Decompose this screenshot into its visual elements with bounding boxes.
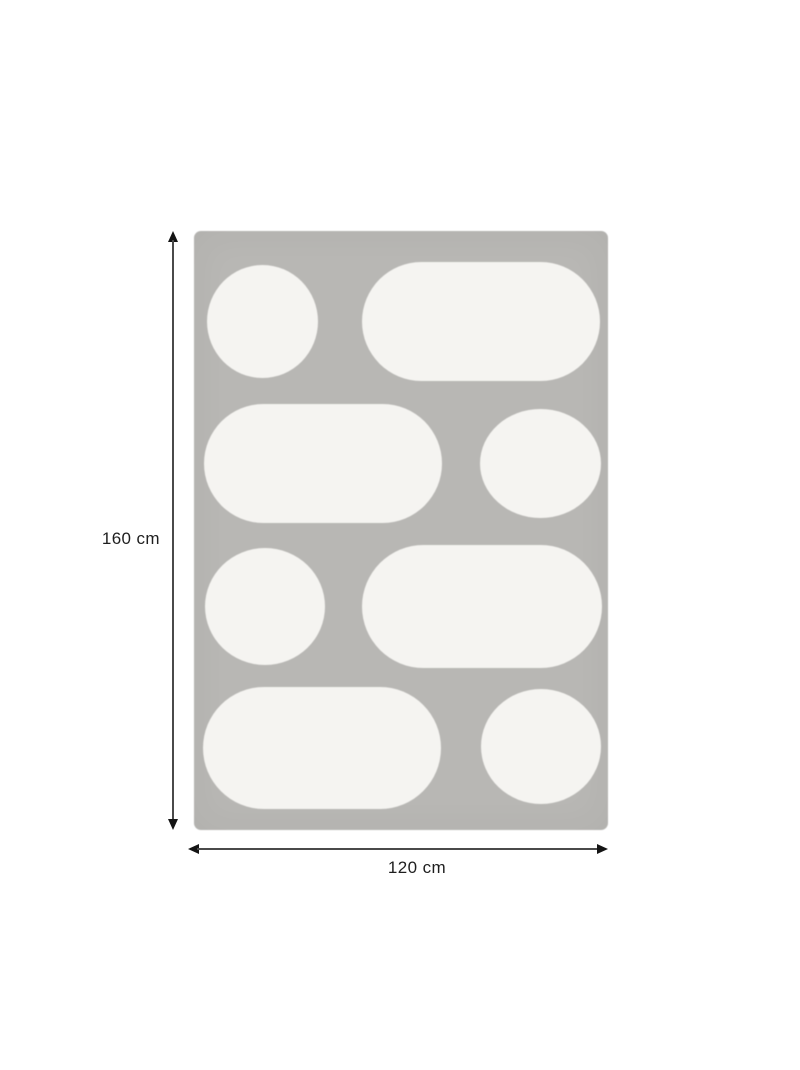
rug-image bbox=[194, 231, 608, 830]
product-dimension-image: 160 cm 120 cm bbox=[0, 0, 800, 1070]
width-dimension-label: 120 cm bbox=[337, 858, 497, 878]
rug-motif-circle-row1-left bbox=[207, 265, 318, 378]
arrowhead-down-icon bbox=[168, 819, 178, 830]
rug-motif-pill-row2-left bbox=[204, 404, 442, 523]
rug-motif-circle-row3-left bbox=[205, 548, 325, 665]
height-dimension-arrow bbox=[167, 231, 179, 830]
arrowhead-right-icon bbox=[597, 844, 608, 854]
width-dimension-arrow bbox=[188, 843, 608, 855]
dimension-line-vertical bbox=[172, 240, 174, 821]
rug-motif-circle-row4-right bbox=[481, 689, 601, 804]
rug-motif-pill-row3-right bbox=[362, 545, 602, 668]
rug-motif-pill-row4-left bbox=[203, 687, 441, 809]
dimension-line-horizontal bbox=[197, 848, 599, 850]
rug-motif-circle-row2-right bbox=[480, 409, 601, 518]
height-dimension-label: 160 cm bbox=[60, 529, 160, 549]
rug-motif-pill-row1-right bbox=[362, 262, 600, 381]
